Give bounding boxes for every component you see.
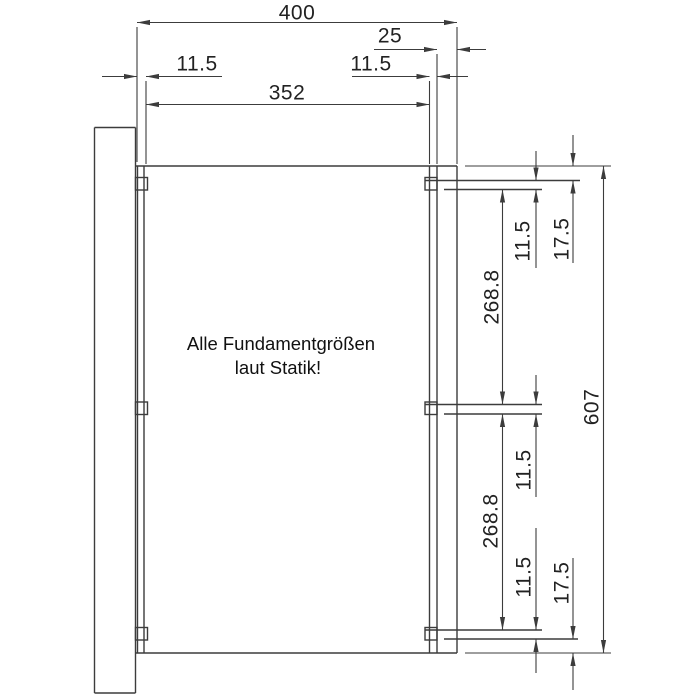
arrowhead-icon	[500, 414, 505, 427]
arrowhead-icon	[137, 20, 150, 25]
arrowhead-icon	[601, 640, 606, 653]
post-bracket	[425, 178, 437, 191]
dim-label-lower-bay: 268.8	[481, 493, 502, 548]
arrowhead-icon	[533, 392, 538, 405]
arrowhead-icon	[500, 190, 505, 203]
arrowhead-icon	[533, 617, 538, 630]
arrowhead-icon	[500, 392, 505, 405]
arrowhead-icon	[533, 190, 538, 203]
arrowhead-icon	[570, 653, 575, 666]
arrowhead-icon	[533, 168, 538, 181]
arrowhead-icon	[601, 166, 606, 179]
arrowhead-icon	[146, 74, 159, 79]
dim-label-top-offset: 17.5	[552, 218, 573, 261]
dim-label-bottom-rail: 11.5	[514, 556, 535, 597]
arrowhead-icon	[146, 102, 159, 107]
arrowhead-icon	[457, 47, 470, 52]
arrowhead-icon	[417, 74, 430, 79]
arrowhead-icon	[570, 626, 575, 639]
arrowhead-icon	[417, 102, 430, 107]
arrowhead-icon	[533, 414, 538, 427]
arrowhead-icon	[424, 47, 437, 52]
dim-label-upper-bay: 268.8	[482, 269, 503, 324]
dim-label-overall-height: 607	[582, 389, 603, 426]
dim-label-overall-width: 400	[279, 3, 316, 24]
arrowhead-icon	[570, 181, 575, 194]
note-text-line2: laut Statik!	[235, 359, 321, 378]
dim-label-mid-rail: 11.5	[514, 449, 535, 490]
note-text-line1: Alle Fundamentgrößen	[187, 335, 375, 354]
dim-label-right-member-width: 11.5	[350, 54, 391, 75]
dim-label-top-rail: 11.5	[513, 220, 534, 261]
dim-label-bottom-offset: 17.5	[552, 562, 573, 605]
dim-label-left-member-width: 11.5	[176, 54, 217, 75]
dim-label-right-post-width: 25	[378, 26, 402, 47]
arrowhead-icon	[500, 617, 505, 630]
arrowhead-icon	[124, 74, 137, 79]
arrowhead-icon	[570, 153, 575, 166]
technical-drawing-canvas: 400 25 11.5 11.5 352 17.5 11.5 268.8 607…	[0, 0, 700, 700]
dim-label-clear-width: 352	[269, 83, 306, 104]
arrowhead-icon	[533, 639, 538, 652]
arrowhead-icon	[444, 20, 457, 25]
arrowhead-icon	[437, 74, 450, 79]
